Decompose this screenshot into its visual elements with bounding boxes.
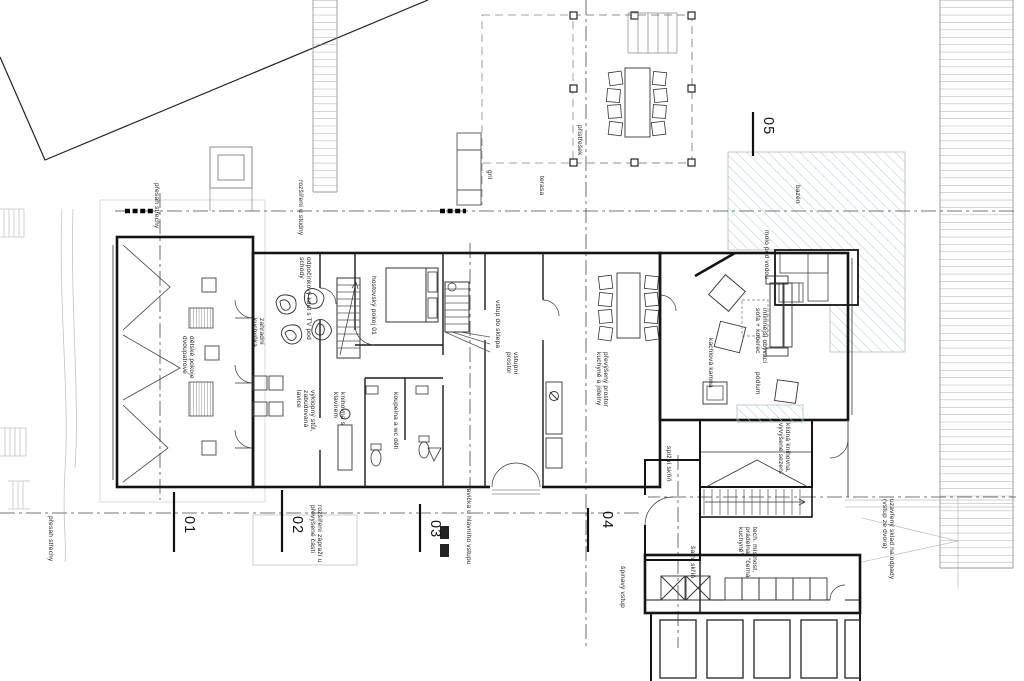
label-dirty-entry: špinavý vstup	[619, 566, 626, 608]
label-guest-room: hostovský pokoj 01	[370, 276, 377, 335]
label-tv-corner: odpočinkový kout s TV pod schody	[298, 257, 312, 340]
label-pool: bazén	[794, 185, 801, 204]
label-intimate-sofa: intimnější obývací sofa + koberec	[754, 308, 768, 363]
stairs-southeast	[704, 489, 805, 515]
floor-plan-drawing	[0, 0, 1024, 681]
label-folding-table: výklopný stůl, zabudovaná lavice	[294, 390, 316, 432]
label-garden-kitchenette: zahradní kuchyňka	[251, 318, 265, 347]
section-mark-02: 02	[289, 516, 304, 534]
site-boundary	[0, 0, 428, 160]
windows	[113, 245, 852, 480]
label-entry-bench: lavička u hlavního vstupu	[465, 487, 472, 565]
label-canopy: přístřešek	[576, 125, 583, 156]
label-podium: pódium	[754, 372, 761, 395]
section-mark-04: 04	[599, 511, 614, 529]
reading-platform	[737, 405, 803, 422]
guest-bed	[386, 268, 438, 322]
label-quiet-library: klidná knihovna, vyvýšené sezení	[777, 423, 791, 474]
label-pier: molo pod vodou	[763, 230, 770, 279]
kitchen-counter	[546, 382, 562, 468]
sauna	[775, 250, 858, 305]
tech-wing	[660, 576, 860, 678]
bathroom-fixtures	[366, 386, 441, 466]
path-steps-strip	[313, 0, 337, 192]
stairs-cellar	[445, 282, 490, 352]
label-porch-extension: rozšíření zápraží u převýšené části	[309, 505, 323, 563]
label-grill: gril	[486, 170, 493, 179]
label-cellar-entry: vstup do sklepa	[494, 300, 501, 348]
label-tiled-stove: kachlová kamna	[707, 338, 714, 388]
label-library-piano: knihovna s klavírem	[332, 392, 346, 425]
floor-plan-page: přesah střechy rozšíření u studny gril t…	[0, 0, 1024, 681]
children-wing	[123, 245, 283, 482]
section-mark-01: 01	[181, 516, 196, 534]
label-kitchen-dining: převýšený prostor kuchyně a jídelny	[595, 352, 609, 407]
label-pantry-cabinet: spížní skříň	[665, 446, 672, 482]
grill	[457, 133, 481, 205]
section-mark-05: 05	[760, 117, 775, 135]
label-children-rooms: dětské pokoje dvoupatrové	[181, 336, 195, 379]
house-walls	[117, 237, 860, 681]
section-mark-03: 03	[427, 520, 442, 538]
label-entry-space: vstupní prostor	[505, 352, 519, 374]
label-terrace: terasa	[538, 176, 545, 195]
label-wardrobe: šatní skříň	[689, 546, 696, 578]
label-tech-room: tech. místnost, prádelna, "černá kuchyně…	[736, 527, 758, 578]
label-roof-overhang-top: přesah střechy	[153, 183, 160, 228]
label-waste-storage: uzavřený sklad na odpady (vstup ze dvora…	[881, 499, 895, 579]
well	[210, 147, 252, 211]
dining-table	[598, 273, 659, 341]
label-bathroom: koupelna a wc děti	[392, 392, 399, 449]
fence-strip	[940, 0, 1013, 568]
label-well-extension: rozšíření u studny	[297, 180, 304, 235]
outdoor-dining-table	[606, 68, 667, 137]
entry-bench	[440, 490, 540, 557]
label-roof-overhang-left: přesah střechy	[47, 516, 54, 561]
stairs-main	[337, 278, 360, 358]
